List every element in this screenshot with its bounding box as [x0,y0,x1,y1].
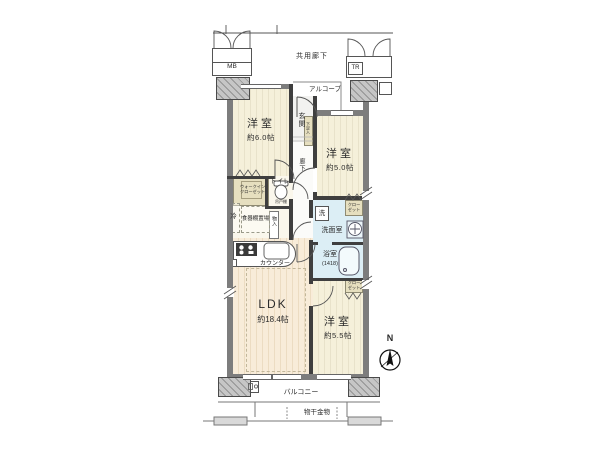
shoe-cabinet-label: 下足入 [306,122,310,134]
wall-break-right-1 [360,187,372,200]
counter-label: カウンター [252,261,298,268]
room-1-door-arc [275,160,294,179]
dimension-line-top [213,25,393,34]
walk-in-closet-door-marks [236,170,260,176]
common-corridor-label: 共用廊下 [288,53,336,61]
room-3-door-arc [313,286,333,306]
plan-symbols-layer [0,0,600,450]
stove-icon [236,243,257,256]
lower-floor-outline [203,417,393,425]
closet-upper-door-marks [345,194,361,200]
room-1-size: 約6.0帖 [233,134,289,143]
corridor-label: 廊下 [298,158,304,172]
ldk-size: 約18.4帖 [233,315,313,324]
balcony-label: バルコニー [278,389,324,397]
entrance-step-lines [293,137,313,141]
compass-icon [380,349,400,370]
bathroom-size-label: (1418) [311,261,349,267]
water-heater-icon [249,384,258,390]
drying-hardware-label: 物干金物 [294,409,340,416]
sink-icon [264,243,289,259]
room-1-name: 洋室 [233,118,289,131]
room-2-size: 約5.0帖 [317,164,363,173]
walk-in-closet-label: ウォークイン クローゼット [240,184,264,195]
compass-north-label: N [382,333,398,343]
storage-label: 物入 [271,216,276,226]
closet-lower-door-marks [345,293,361,299]
alcove-label: アルコーブ [302,86,348,93]
hanging-cupboard-label: 吊戸棚 [270,200,292,205]
room-3-size: 約5.5帖 [313,332,363,341]
laundry-label: 洗 [315,210,329,217]
room-2-door-arc [293,168,315,190]
closet-lower-label: クロー ゼット [345,280,363,291]
washroom-label: 洗面室 [311,227,353,235]
room-3-name: 洋室 [313,316,363,329]
room-2-name: 洋室 [317,148,363,161]
mb-door-arcs [214,31,250,48]
closet-upper-label: クロー ゼット [345,202,363,213]
toilet-label: トイレ [267,178,293,185]
cupboard-space-label: 食器棚置場 [240,216,271,222]
ldk-name: LDK [233,298,313,312]
floor-plan: MB TR [0,0,600,450]
refrigerator-label: 冷 [227,213,240,220]
washroom-door-arc [293,222,311,240]
bathroom-label: 浴室 [311,251,349,259]
tr-door-arcs [348,39,390,56]
entrance-label: 玄関 [298,112,305,128]
